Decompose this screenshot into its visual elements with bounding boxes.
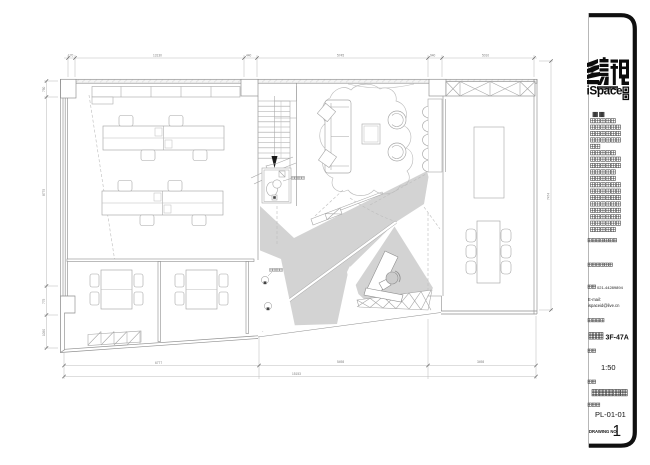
svg-text:1: 1: [613, 423, 622, 440]
svg-text:940: 940: [430, 54, 436, 58]
svg-text:6777: 6777: [155, 361, 162, 365]
svg-text:13130: 13130: [153, 54, 162, 58]
svg-text:PL-01-01: PL-01-01: [595, 410, 626, 419]
svg-text:440: 440: [246, 54, 252, 58]
svg-text:E-mail:: E-mail:: [588, 297, 601, 302]
svg-text:8775: 8775: [42, 189, 46, 196]
svg-text:3F-47A: 3F-47A: [606, 335, 629, 342]
svg-text:ispaceid@live.cn: ispaceid@live.cn: [588, 303, 620, 308]
svg-text:1:50: 1:50: [601, 363, 616, 372]
svg-text:7474: 7474: [547, 193, 551, 200]
svg-text:3498: 3498: [477, 360, 484, 364]
svg-text:1090: 1090: [42, 329, 46, 336]
svg-text:5010: 5010: [482, 54, 489, 58]
svg-text:775: 775: [42, 298, 46, 304]
svg-text:750: 750: [42, 86, 46, 92]
svg-text:170: 170: [68, 54, 74, 58]
svg-text:021-44289894: 021-44289894: [597, 285, 624, 290]
svg-text:5498: 5498: [337, 360, 344, 364]
svg-text:iSpace: iSpace: [587, 84, 623, 98]
svg-text:5745: 5745: [337, 54, 344, 58]
svg-text:15153: 15153: [292, 372, 301, 376]
